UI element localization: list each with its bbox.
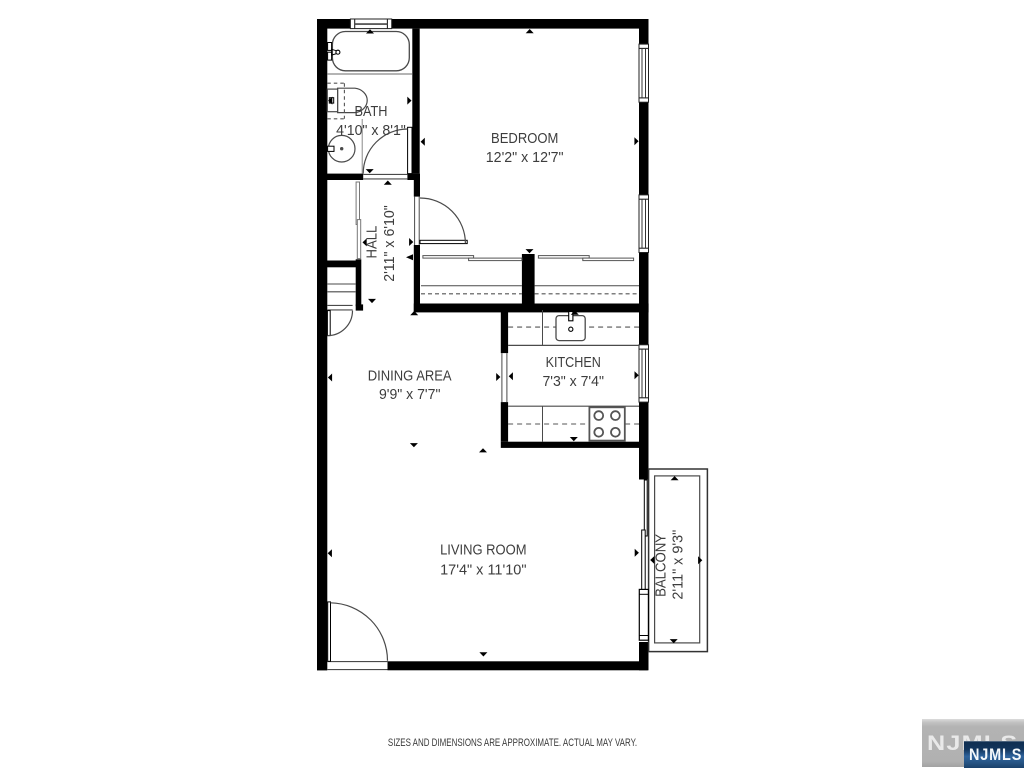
svg-text:LIVING ROOM: LIVING ROOM [440,542,526,559]
svg-text:SIZES AND DIMENSIONS ARE APPRO: SIZES AND DIMENSIONS ARE APPROXIMATE. AC… [388,737,637,749]
svg-text:4'10" x 8'1": 4'10" x 8'1" [336,122,406,139]
svg-text:BALCONY: BALCONY [652,534,669,597]
svg-text:9'9" x 7'7": 9'9" x 7'7" [379,386,441,403]
svg-text:DINING AREA: DINING AREA [368,367,453,384]
svg-text:7'3" x 7'4": 7'3" x 7'4" [542,373,604,390]
svg-text:HALL: HALL [363,226,380,259]
svg-text:BATH: BATH [355,103,388,120]
svg-text:KITCHEN: KITCHEN [546,354,601,371]
svg-text:2'11" x 6'10": 2'11" x 6'10" [381,205,398,282]
svg-text:2'11" x 9'3": 2'11" x 9'3" [669,530,686,600]
svg-text:BEDROOM: BEDROOM [491,130,558,147]
svg-text:12'2" x 12'7": 12'2" x 12'7" [486,149,564,166]
svg-text:17'4" x 11'10": 17'4" x 11'10" [440,561,526,578]
